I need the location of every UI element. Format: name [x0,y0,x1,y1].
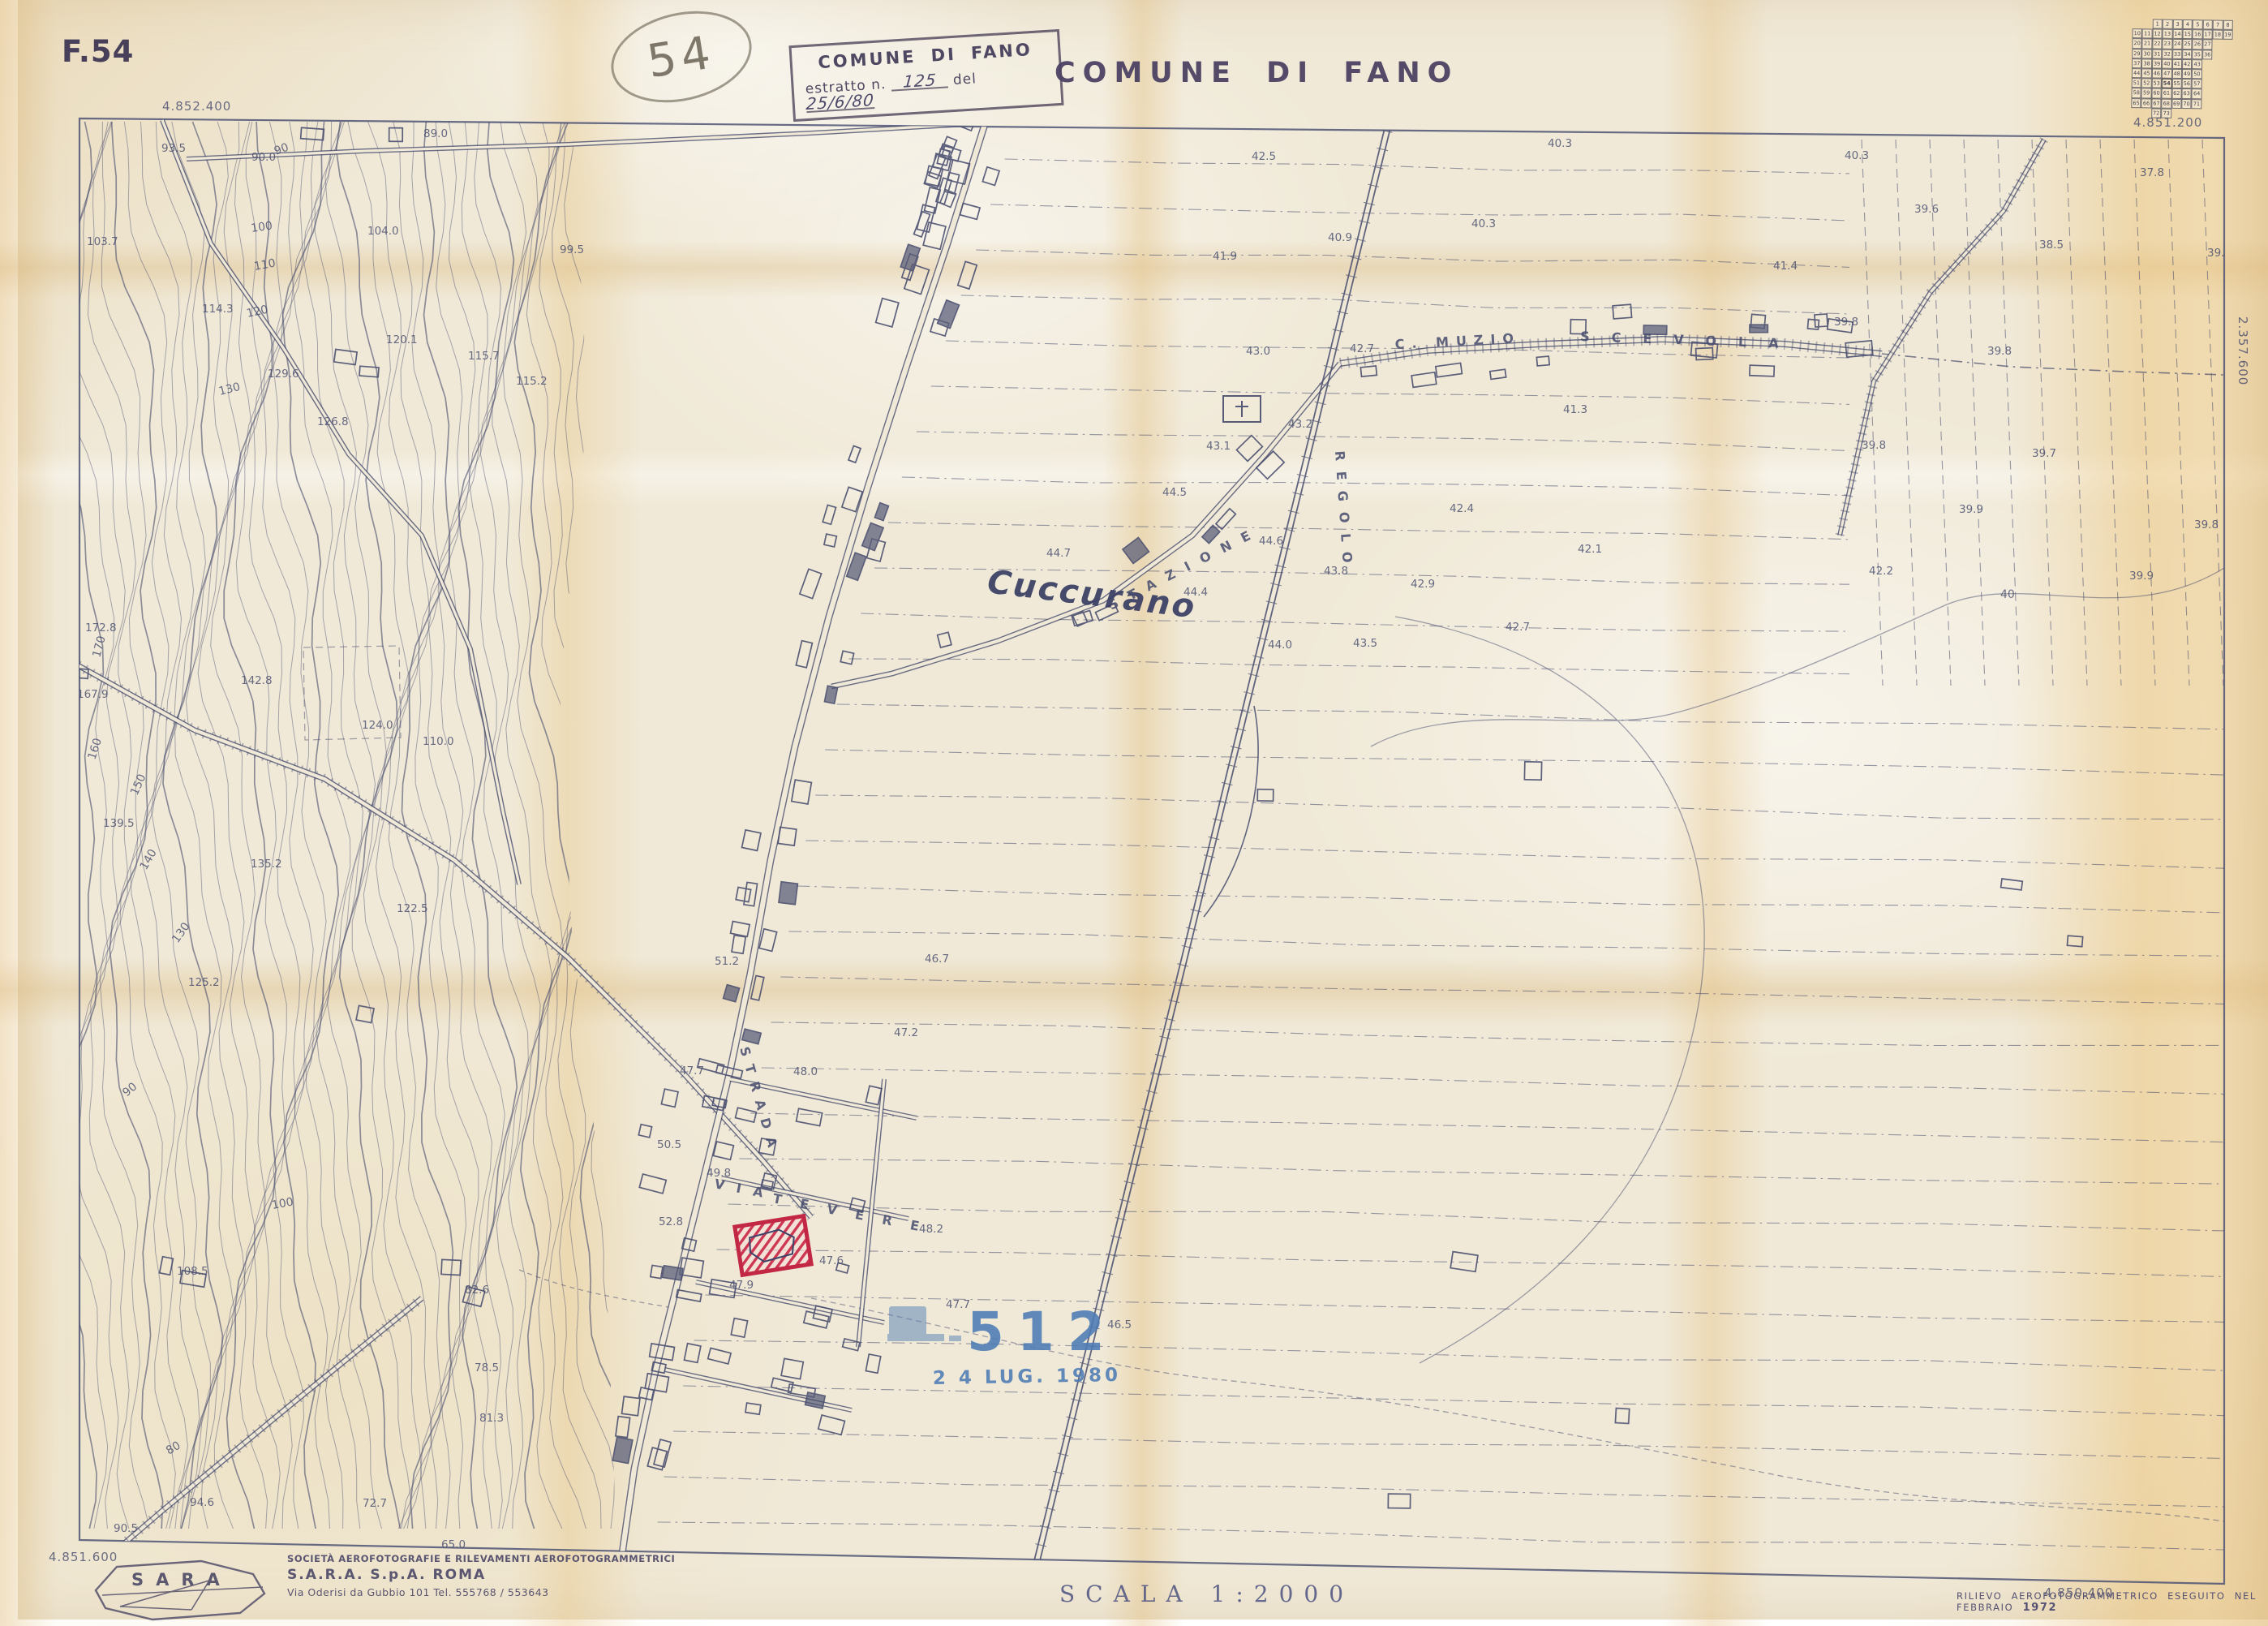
sheet-index-cell: 69 [2171,98,2182,108]
sheet-index-cell: 27 [2202,40,2213,49]
contour-label: 160 [86,737,105,761]
sheet-index-cell: 1 [2152,19,2163,28]
sheet-number: F.54 [62,34,134,69]
spot-elevation: 48.2 [919,1223,943,1236]
survey-note: RILIEVO AEROFOTOGRAMMETRICO ESEGUITO NEL… [1957,1590,2268,1614]
sheet-index-cell: 54 [2162,79,2172,88]
spot-elevation: 81.3 [479,1412,504,1425]
blue-stamp-number: 512 [967,1301,1118,1363]
credits-line2: S.A.R.A. S.p.A. ROMA [287,1567,808,1583]
spot-elevation: 93.5 [161,142,186,155]
spot-elevation: 43.5 [1353,637,1377,650]
spot-elevation: 40.9 [1328,231,1352,244]
scale-label: SCALA 1:2000 [1059,1581,1354,1607]
spot-elevation: 172.8 [85,622,117,634]
sheet-index-cell: 25 [2182,39,2193,49]
spot-elevation: 40.3 [1548,137,1572,150]
spot-elevation: 49.8 [707,1167,731,1180]
spot-elevation: 44.0 [1268,639,1292,652]
spot-elevation: 37.8 [2140,166,2164,179]
sheet-index-cell: 10 [2133,28,2143,38]
spot-elevation: 39.9 [1959,503,1983,516]
sheet-index-cell: 60 [2151,88,2162,98]
spot-elevation: 167.9 [77,688,109,701]
spot-elevation: 39.6 [1914,203,1939,216]
spot-elevation: 72.7 [363,1497,387,1510]
sheet-index-cell: 58 [2131,88,2141,97]
sheet-index-cell: 64 [2192,88,2202,98]
spot-elevation: 44.7 [1046,547,1071,560]
sheet-index-cell: 47 [2162,69,2172,79]
sheet-index-cell: 67 [2151,98,2162,108]
contour-label: 170 [90,634,108,659]
spot-elevation: 42.1 [1578,543,1602,556]
spot-elevation: 42.4 [1450,502,1474,515]
contour-label: 130 [217,381,242,398]
sheet-index-cell: 18 [2213,30,2223,40]
survey-note-year: 1972 [2023,1602,2058,1614]
corner-coordinate: 4.852.400 [162,99,231,114]
sheet-index-cell: 13 [2163,29,2173,39]
spot-elevation: 44.4 [1183,586,1208,599]
pencil-sheet-number: 54 [644,25,719,88]
survey-note-text: RILIEVO AEROFOTOGRAMMETRICO ESEGUITO NEL… [1957,1590,2257,1613]
sheet-index-cell: 26 [2193,40,2203,49]
spot-elevation: 43.0 [1246,345,1270,358]
sara-logo-text: SARA [131,1570,232,1589]
sheet-index-cell: 51 [2132,78,2142,88]
spot-elevation: 40.3 [1471,217,1496,230]
sheet-index-cell: 40 [2162,58,2172,68]
estratto-value-underline: 125 [891,73,948,91]
spot-elevation: 41.3 [1563,403,1587,416]
sheet-index-cell: 48 [2171,69,2182,79]
scanned-map-sheet: 4.852.4004.851.2002.357.6004.851.6004.85… [0,0,2268,1626]
sheet-index-cell: 49 [2182,69,2193,79]
spot-elevation: 135.2 [251,858,282,871]
sheet-index-cell: 36 [2202,49,2213,59]
contour-label: 100 [271,1196,294,1212]
spot-elevation: 108.5 [177,1265,208,1278]
sheet-index-cell: 43 [2192,59,2202,69]
spot-elevation: 39.3 [2207,247,2231,260]
spot-elevation: 42.7 [1506,621,1530,634]
spot-elevation: 65.0 [441,1538,466,1551]
del-value-underline: 25/6/80 [805,94,874,113]
sheet-index-cell: 72 [2151,108,2162,118]
corner-coordinate: 2.357.600 [2236,316,2250,385]
spot-elevation: 115.2 [516,375,548,388]
spot-elevation: 47.7 [946,1298,970,1311]
credits-line3: Via Oderisi da Gubbio 101 Tel. 555768 / … [287,1586,808,1598]
street-label: REGOLO [1332,450,1356,574]
sheet-index-cell: 45 [2141,68,2152,78]
map-title: COMUNE DI FANO [1055,57,1458,89]
sheet-index-cell: 3 [2172,19,2183,29]
sheet-index-cell: 11 [2142,29,2153,39]
sheet-index-cell: 14 [2172,29,2183,39]
spot-elevation: 40.3 [1845,149,1869,162]
stamp-extract-line: estratto n. 125 del 25/6/80 [805,67,1050,114]
spot-elevation: 89.0 [423,127,448,140]
spot-elevation: 42.7 [1350,342,1374,355]
sheet-index-cell: 21 [2142,39,2153,49]
spot-elevation: 103.7 [87,235,118,248]
sheet-index-cell: 73 [2161,108,2171,118]
spot-elevation: 43.8 [1324,565,1348,578]
del-value: 25/6/80 [805,94,874,110]
sheet-index-cell: 37 [2132,58,2142,68]
spot-elevation: 47.6 [819,1254,844,1267]
del-label: del [952,71,977,88]
sheet-index-cell: 66 [2141,98,2152,108]
sheet-index-cell: 32 [2162,49,2172,58]
spot-elevation: 90.0 [251,151,276,164]
spot-elevation: 78.5 [475,1361,499,1374]
spot-elevation: 47.2 [894,1026,918,1039]
spot-elevation: 39.8 [1987,345,2012,358]
sheet-index-cell: 8 [2223,20,2233,30]
spot-elevation: 94.6 [190,1496,214,1509]
sheet-index-cell: 2 [2163,19,2173,29]
estratto-value: 125 [902,74,936,88]
contour-label: 120 [246,303,269,320]
sheet-index-cell: 65 [2131,98,2141,108]
sara-logo: SARA [78,1556,274,1623]
contour-label: 100 [250,219,273,235]
spot-elevation: 39.8 [1862,439,1886,452]
sheet-index-cell: 41 [2172,59,2183,69]
spot-elevation: 47.9 [729,1279,754,1292]
spot-elevation: 39.9 [2129,570,2154,583]
spot-elevation: 41.4 [1773,260,1798,273]
sheet-index-grid: 1234567810111213141516171819202122232425… [2131,19,2233,119]
spot-elevation: 126.8 [317,415,349,428]
spot-elevation: 50.5 [657,1138,681,1151]
spot-elevation: 99.5 [560,243,584,256]
sheet-index-cell: 24 [2172,39,2183,49]
sheet-index-cell: 34 [2182,49,2193,59]
spot-elevation: 104.0 [367,225,399,238]
sheet-index-cell: 31 [2152,49,2163,58]
sheet-index-cell: 56 [2182,79,2193,88]
spot-elevation: 52.8 [659,1215,683,1228]
sheet-index-cell: 20 [2132,39,2142,49]
spot-elevation: 42.5 [1252,150,1276,163]
spot-elevation: 43.1 [1206,440,1231,453]
spot-elevation: 46.7 [925,953,949,966]
spot-elevation: 110.0 [423,735,454,748]
spot-elevation: 124.0 [362,719,393,732]
spot-elevation: 129.6 [268,368,299,381]
credits-line1: SOCIETÀ AEROFOTOGRAFIE E RILEVAMENTI AER… [287,1553,808,1564]
sheet-index-cell: 61 [2162,88,2172,98]
spot-elevation: 48.0 [793,1065,818,1078]
sheet-index-cell: 22 [2152,39,2163,49]
contour-label: 40 [2000,588,2015,601]
sheet-index-cell: 70 [2181,98,2192,108]
spot-elevation: 39.8 [1834,316,1858,329]
contour-label: 90 [120,1080,140,1099]
sheet-index-cell: 5 [2193,19,2203,29]
sheet-index-cell: 39 [2152,58,2163,68]
spot-elevation: 47.7 [680,1065,704,1078]
map-labels: CuccuranoC. MUZIOSCEVOLAVIATEVERESTAZION… [77,127,2231,1551]
sheet-index-cell: 44 [2132,68,2142,78]
sheet-index-cell: 38 [2141,58,2152,68]
spot-elevation: 82.6 [465,1284,489,1297]
spot-elevation: 42.2 [1869,565,1893,578]
sheet-index-cell: 7 [2213,20,2223,30]
spot-elevation: 39.8 [2194,518,2219,531]
sheet-index-cell: 16 [2193,29,2203,39]
sheet-index-cell: 12 [2152,29,2163,39]
sheet-index-cell: 57 [2192,79,2202,88]
spot-elevation: 44.6 [1259,535,1283,548]
sheet-index-cell: 33 [2172,49,2183,58]
sheet-index-cell: 42 [2182,59,2193,69]
sheet-index-cell: 71 [2192,99,2202,109]
sheet-index-cell: 50 [2192,69,2202,79]
spot-elevation: 120.1 [386,333,418,346]
sheet-index-cell: 53 [2151,79,2162,88]
sheet-index-cell: 52 [2141,78,2152,88]
spot-elevation: 125.2 [188,976,220,989]
sheet-index-cell: 55 [2171,79,2182,88]
map-drawing: 4.852.4004.851.2002.357.6004.851.6004.85… [0,0,2268,1626]
sheet-index-cell: 4 [2183,19,2193,29]
contour-label: 80 [164,1439,183,1458]
sheet-index-cell: 23 [2163,39,2173,49]
sheet-index-cell: 62 [2171,88,2182,98]
spot-elevation: 114.3 [202,303,234,316]
spot-elevation: 139.5 [103,817,135,830]
map-linework: 5122 4 LUG. 1980 [49,114,2257,1608]
spot-elevation: 122.5 [397,902,428,915]
sheet-index-cell: 30 [2142,49,2153,58]
sheet-index-cell: 63 [2181,88,2192,98]
spot-elevation: 46.5 [1107,1318,1132,1331]
spot-elevation: 43.2 [1288,418,1312,431]
spot-elevation: 38.5 [2039,239,2064,252]
credits-block: SARA SOCIETÀ AEROFOTOGRAFIE E RILEVAMENT… [78,1553,808,1598]
sheet-index-cell: 15 [2182,29,2193,39]
sheet-index-cell: 6 [2202,19,2213,29]
blue-stamp-date: 2 4 LUG. 1980 [933,1365,1122,1389]
highlighted-parcel [735,1216,811,1275]
spot-elevation: 42.9 [1411,578,1435,591]
street-label: VIA [713,1176,776,1202]
spot-elevation: 90.5 [114,1522,138,1535]
spot-elevation: 142.8 [241,674,273,687]
contour-label: 110 [253,257,277,273]
spot-elevation: 41.9 [1213,250,1237,263]
spot-elevation: 51.2 [715,955,739,968]
sheet-index-cell: 46 [2152,68,2163,78]
sheet-index-cell: 19 [2223,30,2233,40]
sheet-index-cell: 35 [2193,49,2203,59]
spot-elevation: 115.7 [468,350,500,363]
sheet-index-cell: 59 [2141,88,2152,98]
sheet-index-cell: 68 [2161,98,2171,108]
sheet-index-cell: 17 [2202,30,2213,40]
spot-elevation: 39.7 [2032,447,2056,460]
sheet-index-cell: 29 [2132,49,2142,58]
spot-elevation: 44.5 [1162,486,1187,499]
